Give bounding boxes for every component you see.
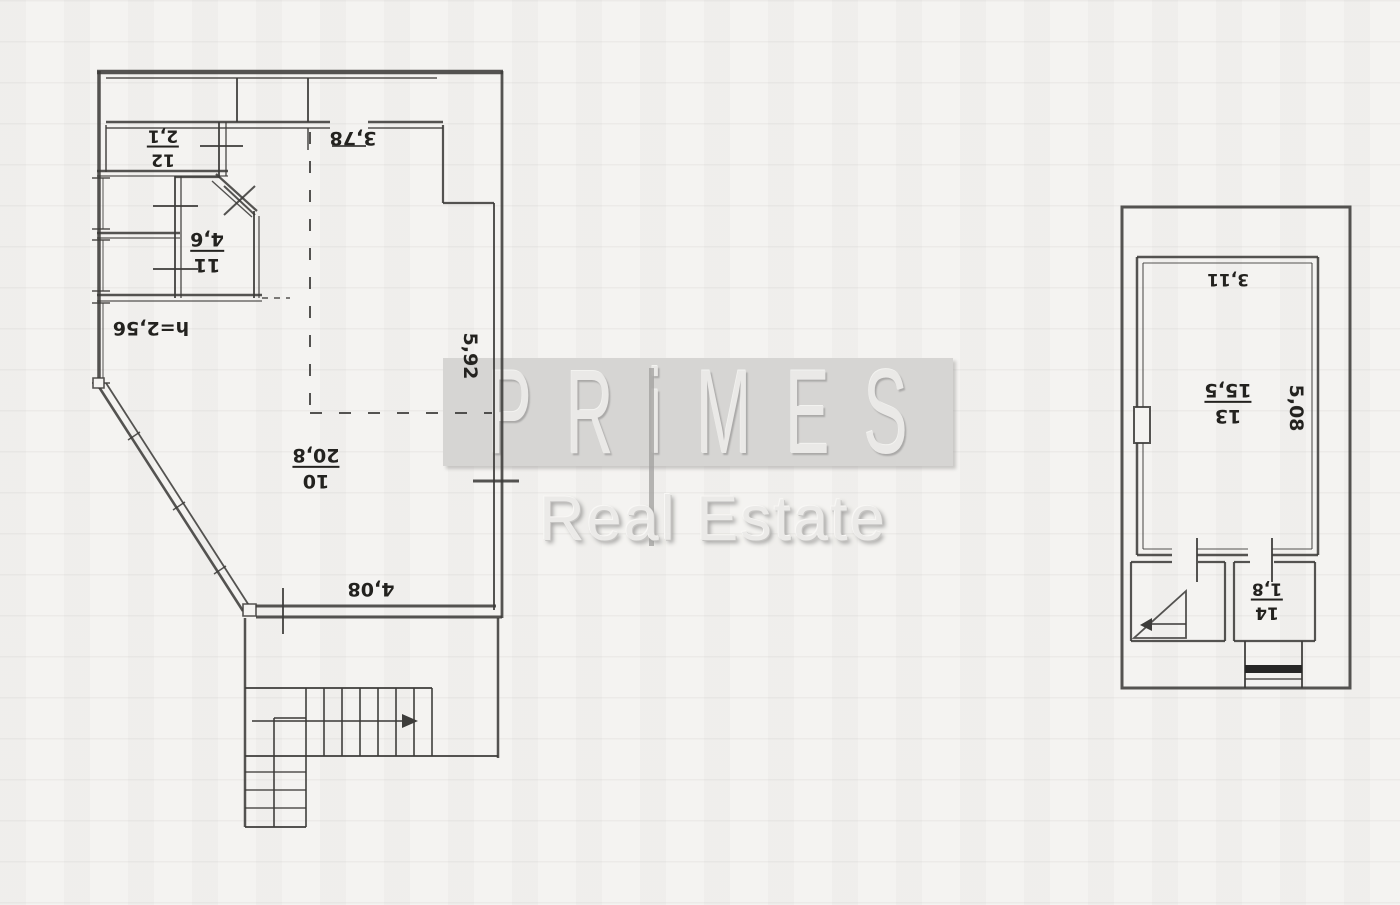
- dimension-top-right-plan: 3,11: [1207, 269, 1249, 289]
- diagonal-wall: [93, 378, 256, 616]
- room-area: 20,8: [293, 443, 340, 466]
- room-label-14: 14 1,8: [1251, 578, 1283, 621]
- staircase: [245, 618, 498, 827]
- entrance-porch: [1245, 641, 1302, 688]
- room-area: 15,5: [1205, 378, 1252, 401]
- floor-plan-scan: { "watermark": { "brand": "PRiMES", "tag…: [0, 0, 1400, 905]
- room-area: 1,8: [1251, 578, 1283, 599]
- dimension-top-left-plan: 3,78: [330, 127, 377, 149]
- floor-plan-drawing: [0, 0, 1400, 905]
- room-number: 10: [293, 466, 340, 491]
- room-number: 12: [147, 146, 179, 169]
- room-label-11: 11 4,6: [190, 227, 224, 275]
- right-unit-lower-rooms: [1131, 562, 1315, 688]
- room-label-10: 10 20,8: [293, 443, 340, 491]
- dimension-right-left-plan: 5,92: [459, 333, 481, 380]
- room-area: 2,1: [147, 125, 179, 146]
- room-label-12: 12 2,1: [147, 125, 179, 168]
- dimension-bottom-left-plan: 4,08: [348, 578, 395, 600]
- stair-direction-arrow: [1140, 618, 1152, 631]
- room-label-13: 13 15,5: [1205, 378, 1252, 426]
- room-number: 13: [1205, 401, 1252, 426]
- room-area: 4,6: [190, 227, 224, 250]
- stair-direction-arrow: [252, 714, 418, 728]
- ceiling-height-note: h=2,56: [113, 317, 189, 339]
- room-number: 14: [1251, 599, 1283, 622]
- shaft-x-mark: [224, 186, 255, 215]
- window-jambs-left: [92, 178, 110, 383]
- wall-notch: [1134, 407, 1150, 443]
- dimension-right-right-plan: 5,08: [1285, 385, 1307, 432]
- porch-threshold-bar: [1245, 665, 1302, 673]
- room-number: 11: [190, 250, 224, 275]
- winder-stair-symbol: [1134, 591, 1186, 638]
